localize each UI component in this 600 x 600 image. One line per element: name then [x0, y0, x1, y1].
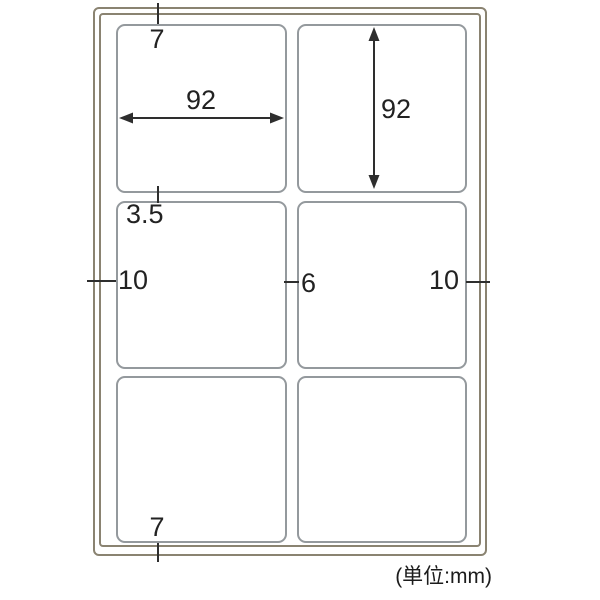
dimension-label-bottom-margin: 7 [144, 514, 170, 541]
dimension-label-label-height: 92 [381, 96, 411, 123]
dimension-label-row-gap: 3.5 [126, 201, 164, 228]
dimension-label-label-width: 92 [171, 87, 231, 114]
label-cell-row3-col1 [116, 376, 287, 543]
dimension-label-right-margin: 10 [429, 267, 459, 294]
label-cell-row3-col2 [297, 376, 467, 543]
unit-note: (単位:mm) [378, 565, 492, 588]
dimension-label-left-margin: 10 [118, 267, 148, 294]
dimension-label-top-margin: 7 [144, 26, 170, 53]
dimension-label-column-gap: 6 [301, 270, 316, 297]
label-sheet-dimension-diagram: 7 92 92 3.5 10 6 10 7 (単位:mm) [0, 0, 600, 600]
